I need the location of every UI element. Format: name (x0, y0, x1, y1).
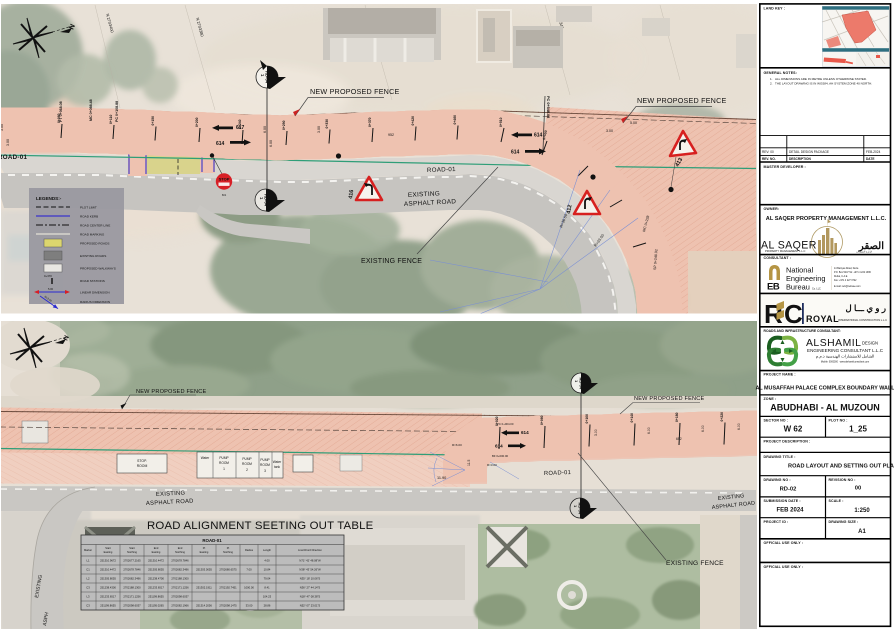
svg-text:N18° 47' 08.38"S: N18° 47' 08.38"S (300, 595, 321, 599)
svg-text:ROAD CENTER LINE: ROAD CENTER LINE (80, 224, 110, 228)
svg-text:Marker: Marker (84, 548, 92, 552)
svg-text:2702192.7451: 2702192.7451 (219, 586, 237, 590)
svg-text:6.00: 6.00 (269, 140, 273, 147)
svg-text:0+370: 0+370 (44, 274, 52, 278)
svg-text:2702082.1966: 2702082.1966 (171, 604, 189, 608)
svg-text:1: 1 (223, 467, 225, 471)
svg-text:PLOT LIMIT: PLOT LIMIT (80, 206, 97, 210)
svg-text:DESIGN: DESIGN (862, 341, 878, 346)
svg-text:Water: Water (273, 460, 282, 464)
svg-text:2702098.6037: 2702098.6037 (123, 604, 141, 608)
svg-text:251238.4700: 251238.4700 (148, 577, 164, 581)
svg-text:Co. LLC: Co. LLC (812, 288, 821, 291)
svg-text:2702682.3496: 2702682.3496 (123, 577, 141, 581)
svg-text:C3: C3 (86, 604, 90, 608)
svg-text:11.90: 11.90 (437, 476, 446, 480)
svg-text:PROPOSED ROADS: PROPOSED ROADS (80, 242, 109, 246)
svg-text:2702188.1300: 2702188.1300 (171, 577, 189, 581)
svg-text:الشامل للاستشارات الهندسية ذ.م: الشامل للاستشارات الهندسية ذ.م.م (816, 354, 875, 359)
svg-text:2702677.2165: 2702677.2165 (123, 559, 141, 563)
svg-text:Northing: Northing (175, 550, 185, 554)
svg-text:REVISION NO :: REVISION NO : (829, 478, 856, 482)
svg-text:N52° 07' 23.01"S: N52° 07' 23.01"S (300, 604, 321, 608)
svg-text:REV: 00: REV: 00 (762, 150, 774, 154)
svg-text:2702098.6037: 2702098.6037 (171, 595, 189, 599)
svg-text:3: 3 (264, 469, 266, 473)
svg-text:End: End (178, 546, 183, 550)
svg-text:251305.8055: 251305.8055 (148, 568, 164, 572)
svg-text:6.00: 6.00 (737, 423, 741, 430)
svg-text:End: End (154, 546, 159, 550)
svg-text:Pt: Pt (227, 546, 230, 550)
svg-text:614: 614 (534, 133, 543, 139)
svg-text:251303.0055: 251303.0055 (196, 568, 212, 572)
svg-text:0+330: 0+330 (325, 119, 329, 129)
svg-text:DESCRIPTION: DESCRIPTION (789, 157, 811, 161)
svg-text:PROPERTY MANAGEMENT L.L.C: PROPERTY MANAGEMENT L.L.C (765, 249, 805, 253)
svg-text:PC 0+108.88: PC 0+108.88 (115, 101, 119, 122)
svg-text:RD-02: RD-02 (780, 487, 797, 493)
svg-text:0+460: 0+460 (453, 115, 457, 125)
svg-text:ABUDHABI - AL MUZOUN: ABUDHABI - AL MUZOUN (770, 403, 880, 413)
svg-text:N38° 43' 54.26"W: N38° 43' 54.26"W (299, 568, 321, 572)
svg-text:ROADS AND INFRASTRUCTURE CONSU: ROADS AND INFRASTRUCTURE CONSULTANT: (764, 329, 841, 333)
svg-text:P.O. Box 5247 Tel: +971 4 222: P.O. Box 5247 Tel: +971 4 222 1386 (834, 272, 871, 274)
svg-text:RD-04: RD-04 (264, 194, 269, 207)
svg-text:2702678.7846: 2702678.7846 (123, 568, 141, 572)
svg-text:ROAD STATIONS: ROAD STATIONS (80, 279, 105, 283)
svg-text:251238.4300: 251238.4300 (100, 586, 116, 590)
svg-text:Length: Length (263, 548, 271, 552)
svg-text:ROAD-01: ROAD-01 (0, 154, 28, 161)
svg-text:ROOM: ROOM (242, 462, 252, 466)
svg-text:6.00: 6.00 (263, 126, 267, 133)
svg-text:SECTOR NO :: SECTOR NO : (764, 419, 789, 423)
svg-text:AL SAQER PROPERTY MANAGEMENT L: AL SAQER PROPERTY MANAGEMENT L.L.C. (766, 216, 887, 222)
svg-text:EB: EB (767, 282, 780, 293)
svg-text:2. THE LAYOUT DRAWING IS IN: 2. THE LAYOUT DRAWING IS IN WGS84, AH SY… (770, 82, 872, 86)
svg-text:PUMP: PUMP (242, 457, 251, 461)
svg-text:0+290: 0+290 (282, 120, 286, 130)
svg-text:2702680.6575: 2702680.6575 (219, 568, 237, 572)
svg-text:Dubai, U.A.E.: Dubai, U.A.E. (834, 275, 848, 278)
svg-text:0+110: 0+110 (109, 115, 113, 124)
svg-text:ROAD-01: ROAD-01 (544, 470, 571, 477)
svg-text:251310.4472: 251310.4472 (148, 559, 164, 563)
svg-text:4.00: 4.00 (264, 559, 270, 563)
svg-text:EXISTING FENCE: EXISTING FENCE (361, 258, 422, 265)
svg-text:L3: L3 (87, 595, 90, 599)
svg-text:617: 617 (236, 125, 245, 131)
svg-text:7.00: 7.00 (246, 568, 252, 572)
svg-text:LEGENDS:-: LEGENDS:- (36, 196, 62, 201)
svg-text:0+140: 0+140 (630, 413, 634, 423)
svg-text:ROAD-01: ROAD-01 (202, 538, 222, 543)
svg-text:33.00: 33.00 (246, 604, 253, 608)
svg-text:NEW PROPOSED FENCE: NEW PROPOSED FENCE (310, 87, 399, 96)
svg-text:14 Baniyas Road, Deira: 14 Baniyas Road, Deira (834, 267, 859, 270)
svg-text:STOP: STOP (219, 177, 230, 182)
svg-text:L2: L2 (87, 577, 90, 581)
svg-text:1_25: 1_25 (849, 425, 867, 434)
svg-text:Easting: Easting (200, 550, 209, 554)
svg-text:DRAWING SIZE :: DRAWING SIZE : (829, 520, 859, 524)
svg-text:1000.00: 1000.00 (244, 586, 254, 590)
svg-text:N36° 27' 44.14"S: N36° 27' 44.14"S (300, 586, 321, 590)
svg-text:2702171.1256: 2702171.1256 (123, 595, 141, 599)
svg-text:0+100: 0+100 (585, 414, 589, 424)
svg-text:ROAD-01: ROAD-01 (427, 166, 456, 174)
svg-text:0+510: 0+510 (499, 117, 503, 127)
svg-text:952: 952 (388, 133, 394, 137)
svg-text:E-mail: neb@nebuae.com: E-mail: neb@nebuae.com (834, 286, 861, 288)
svg-text:2702171.1256: 2702171.1256 (171, 586, 189, 590)
svg-text:251195.0265: 251195.0265 (148, 604, 164, 608)
svg-text:251302.1911: 251302.1911 (196, 586, 212, 590)
svg-text:PLOT NO :: PLOT NO : (829, 419, 848, 423)
svg-text:PC 0+004.00: PC 0+004.00 (497, 422, 514, 426)
svg-text:Mobile: 0000000 www.alshamil: Mobile: 0000000 www.alshamilconsultant.c… (821, 361, 869, 364)
svg-text:0+370: 0+370 (368, 117, 372, 127)
svg-text:601: 601 (222, 193, 227, 197)
svg-text:R=3.00: R=3.00 (487, 463, 497, 467)
svg-text:614: 614 (216, 141, 225, 147)
svg-text:2702188.1300: 2702188.1300 (123, 586, 141, 590)
svg-text:FEB-2024: FEB-2024 (866, 150, 881, 154)
svg-text:2702682.3496: 2702682.3496 (171, 568, 189, 572)
svg-text:0+200: 0+200 (195, 117, 199, 127)
svg-text:3.00: 3.00 (606, 129, 613, 133)
svg-text:ROOM: ROOM (219, 461, 229, 465)
svg-text:ROAD ALIGNMENT SEETING OUT TAB: ROAD ALIGNMENT SEETING OUT TABLE (147, 520, 374, 532)
svg-text:251199.8655: 251199.8655 (148, 595, 164, 599)
svg-text:Bureau: Bureau (786, 283, 810, 292)
svg-text:Line/Chord Direction: Line/Chord Direction (298, 548, 322, 552)
svg-text:6.00: 6.00 (647, 427, 651, 434)
svg-text:ROAD KERB: ROAD KERB (80, 215, 98, 219)
svg-text:CONSULTANT :: CONSULTANT : (764, 256, 792, 260)
svg-text:ZONE :: ZONE : (764, 397, 777, 401)
svg-text:Easting: Easting (104, 550, 113, 554)
svg-text:SUBMISSION DATE :: SUBMISSION DATE : (764, 499, 801, 503)
svg-text:PUMP: PUMP (219, 456, 228, 460)
svg-text:MASTER DEVELOPER :: MASTER DEVELOPER : (764, 165, 806, 169)
svg-text:NEW PROPOSED FENCE: NEW PROPOSED FENCE (634, 396, 704, 402)
svg-text:Fax: +971 4 227 3722: Fax: +971 4 227 3722 (834, 280, 857, 282)
svg-text:OWNER:: OWNER: (764, 207, 780, 211)
svg-text:OFFICIAL USE ONLY :: OFFICIAL USE ONLY : (764, 565, 804, 569)
svg-text:NEW PROPOSED FENCE: NEW PROPOSED FENCE (637, 96, 726, 105)
svg-text:Easting: Easting (152, 550, 161, 554)
svg-text:DATE: DATE (866, 157, 874, 161)
svg-text:5.00: 5.00 (48, 287, 54, 291)
svg-text:OFFICIAL USE ONLY :: OFFICIAL USE ONLY : (764, 541, 804, 545)
svg-text:EXISTING ROADS: EXISTING ROADS (80, 254, 106, 258)
svg-text:DETAIL DESIGN PACKAGE: DETAIL DESIGN PACKAGE (789, 150, 829, 154)
svg-text:LAND KEY :: LAND KEY : (764, 6, 786, 10)
svg-text:ROYAL: ROYAL (806, 314, 839, 324)
svg-text:PROJECT ID :: PROJECT ID : (764, 520, 789, 524)
svg-text:L1: L1 (87, 559, 90, 563)
svg-text:251310.9672: 251310.9672 (100, 559, 116, 563)
svg-text:1. ALL DIMENSIONS ARE IN MET: 1. ALL DIMENSIONS ARE IN METRE UNLESS OT… (770, 77, 867, 81)
svg-text:PROJECT NAME :: PROJECT NAME : (764, 373, 796, 377)
svg-text:614: 614 (521, 430, 529, 435)
svg-text:79.04: 79.04 (264, 577, 271, 581)
svg-text:251233.6517: 251233.6517 (148, 586, 164, 590)
svg-text:652: 652 (676, 437, 682, 441)
svg-text:C3: C3 (86, 586, 90, 590)
svg-text:BF 0+000.00: BF 0+000.00 (492, 454, 509, 458)
svg-text:10.84: 10.84 (264, 568, 271, 572)
svg-text:00: 00 (855, 486, 861, 492)
svg-text:R=6.00: R=6.00 (452, 443, 462, 447)
svg-text:PC 0+548.08: PC 0+548.08 (546, 96, 550, 118)
svg-text:0+420: 0+420 (411, 116, 415, 126)
svg-text:251199.8655: 251199.8655 (100, 604, 116, 608)
svg-text:ROAD MARKING: ROAD MARKING (80, 233, 105, 237)
svg-text:N35° 18' 10.06"S: N35° 18' 10.06"S (300, 577, 321, 581)
svg-text:Water: Water (201, 456, 210, 460)
svg-text:EXISTING FENCE: EXISTING FENCE (666, 560, 724, 567)
svg-text:Start: Start (129, 546, 135, 550)
svg-text:NEW PROPOSED FENCE: NEW PROPOSED FENCE (136, 389, 206, 395)
svg-text:W 62: W 62 (784, 425, 803, 434)
svg-text:tank: tank (274, 465, 280, 469)
svg-text:3.00: 3.00 (6, 139, 10, 146)
svg-text:LINEAR DIMENSION: LINEAR DIMENSION (80, 291, 110, 295)
svg-text:SCALE :: SCALE : (829, 499, 844, 503)
svg-text:Radius: Radius (245, 548, 254, 552)
svg-text:REV. NO.: REV. NO. (762, 157, 776, 161)
svg-text:PUMP: PUMP (260, 458, 269, 462)
svg-text:RD-04: RD-04 (265, 71, 270, 84)
svg-text:Start: Start (105, 546, 111, 550)
svg-text:Northing: Northing (223, 550, 233, 554)
svg-text:2: 2 (246, 468, 248, 472)
svg-text:3.00: 3.00 (317, 126, 321, 133)
svg-text:28.86: 28.86 (264, 604, 271, 608)
svg-text:ROAD LAYOUT AND SETTING OUT PL: ROAD LAYOUT AND SETTING OUT PLAN (788, 464, 894, 470)
svg-text:104.23: 104.23 (263, 595, 272, 599)
svg-text:2702678.7846: 2702678.7846 (171, 559, 189, 563)
svg-text:0+220: 0+220 (720, 412, 724, 422)
svg-text:Northing: Northing (127, 550, 137, 554)
svg-text:251314.2056: 251314.2056 (196, 604, 212, 608)
svg-text:0+180: 0+180 (675, 412, 679, 422)
svg-text:5.00: 5.00 (630, 121, 637, 125)
svg-text:0+060: 0+060 (540, 415, 544, 425)
svg-text:STOP.: STOP. (137, 459, 147, 463)
svg-text:ROOM: ROOM (137, 464, 148, 468)
svg-text:GENERAL NOTES:: GENERAL NOTES: (764, 71, 797, 75)
svg-text:2702098.1475: 2702098.1475 (219, 604, 237, 608)
svg-text:PT 0+068.08: PT 0+068.08 (59, 101, 63, 122)
svg-text:C: C (784, 299, 803, 329)
svg-text:11.5: 11.5 (467, 460, 471, 466)
svg-text:614: 614 (495, 444, 503, 449)
svg-text:614: 614 (511, 150, 520, 156)
svg-text:C1: C1 (86, 568, 90, 572)
svg-text:PROJECT DESCRIPTION :: PROJECT DESCRIPTION : (764, 439, 811, 443)
svg-text:DRAWING NO :: DRAWING NO : (764, 478, 791, 482)
svg-text:3.00: 3.00 (594, 429, 598, 436)
svg-text:N71° 42' 48.08"W: N71° 42' 48.08"W (299, 559, 321, 563)
svg-text:RADIUS DIMENSION: RADIUS DIMENSION (80, 300, 110, 304)
svg-text:1:250: 1:250 (854, 508, 870, 514)
svg-text:ر و ي ـــا ل: ر و ي ـــا ل (845, 303, 886, 314)
svg-text:0+150: 0+150 (151, 116, 155, 126)
svg-text:251233.6517: 251233.6517 (100, 595, 116, 599)
svg-text:A1: A1 (858, 529, 866, 535)
svg-text:ROOM: ROOM (260, 463, 270, 467)
svg-text:ENGINEERING CONSULTANT L.L.C: ENGINEERING CONSULTANT L.L.C (807, 348, 884, 353)
svg-text:416: 416 (348, 189, 355, 199)
svg-text:Pt: Pt (203, 546, 206, 550)
svg-text:8.41: 8.41 (264, 586, 270, 590)
svg-text:251310.4472: 251310.4472 (100, 568, 116, 572)
svg-text:FEB 2024: FEB 2024 (776, 508, 804, 514)
svg-text:6.00: 6.00 (701, 425, 705, 432)
svg-text:INTERNATIONAL CONSTRUCTION L.L: INTERNATIONAL CONSTRUCTION L.L.C (838, 318, 887, 322)
svg-text:AL MUSAFFAH PALACE COMPLEX BOU: AL MUSAFFAH PALACE COMPLEX BOUNDARY WALL (755, 386, 894, 392)
svg-text:DRAWING TITLE :: DRAWING TITLE : (764, 455, 796, 459)
svg-text:PROPOSED WALKWAYS: PROPOSED WALKWAYS (80, 267, 116, 271)
svg-text:251305.8055: 251305.8055 (100, 577, 116, 581)
svg-text:MC 0+088.48: MC 0+088.48 (89, 99, 93, 121)
